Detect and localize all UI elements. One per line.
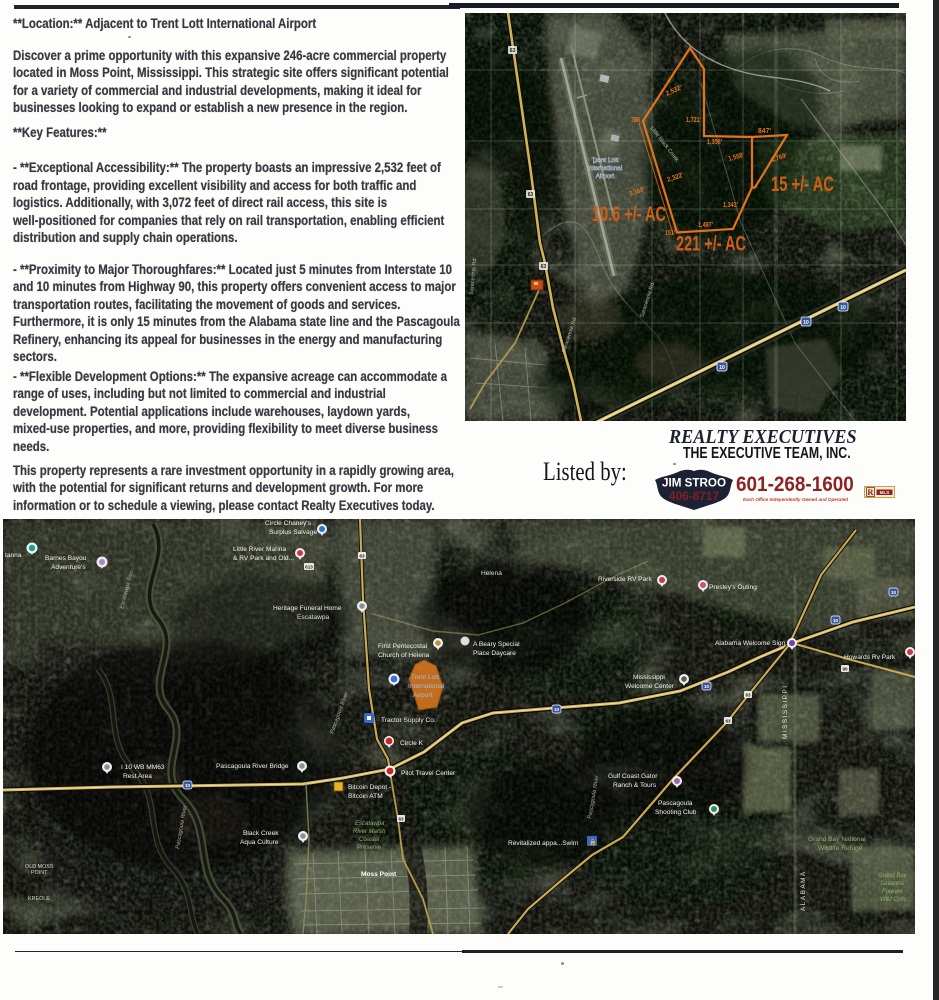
svg-text:Airport: Airport <box>413 692 433 699</box>
svg-text:613: 613 <box>305 565 313 570</box>
svg-text:International: International <box>408 683 445 690</box>
svg-text:Bitcoin Depot -: Bitcoin Depot - <box>348 784 391 791</box>
svg-text:Tractor Supply Co.: Tractor Supply Co. <box>381 717 436 724</box>
svg-text:Airport: Airport <box>596 173 615 180</box>
svg-text:& RV Park and Old...: & RV Park and Old... <box>233 555 294 562</box>
svg-text:10: 10 <box>833 618 839 623</box>
svg-text:10: 10 <box>704 684 710 689</box>
svg-text:10: 10 <box>803 320 809 326</box>
svg-text:🔒: 🔒 <box>589 838 596 846</box>
svg-text:221 +/- AC: 221 +/- AC <box>676 233 746 256</box>
svg-text:Black Creek: Black Creek <box>243 830 279 837</box>
svg-text:Surplus Salvage: Surplus Salvage <box>269 529 317 536</box>
svg-text:I 10 WB MM63: I 10 WB MM63 <box>121 764 165 771</box>
svg-text:Escatawpa: Escatawpa <box>355 821 385 827</box>
svg-text:Wildlife Refuge: Wildlife Refuge <box>818 845 863 852</box>
svg-text:15 +/- AC: 15 +/- AC <box>771 173 834 196</box>
svg-text:Pascagoula: Pascagoula <box>658 800 693 807</box>
svg-text:Grand Bay: Grand Bay <box>878 873 908 879</box>
svg-text:Circle K: Circle K <box>400 740 424 747</box>
svg-text:Alabama Welcome Sign: Alabama Welcome Sign <box>715 640 786 647</box>
svg-text:63: 63 <box>359 554 365 559</box>
svg-text:Moss Point: Moss Point <box>361 871 397 878</box>
svg-text:R: R <box>867 487 874 497</box>
svg-text:63: 63 <box>745 693 751 698</box>
svg-text:63: 63 <box>541 264 547 270</box>
svg-text:847': 847' <box>758 128 771 135</box>
svg-text:Pascagoula River Bridge: Pascagoula River Bridge <box>216 763 289 770</box>
svg-text:MISSISSIPPI: MISSISSIPPI <box>782 684 789 739</box>
svg-text:First Pentecostal: First Pentecostal <box>378 643 428 650</box>
svg-text:1,358': 1,358' <box>707 139 722 146</box>
svg-text:Riverside RV Park: Riverside RV Park <box>598 576 652 583</box>
svg-text:10: 10 <box>891 590 897 595</box>
svg-text:A Beary Special: A Beary Special <box>473 641 520 648</box>
svg-text:Forever: Forever <box>882 889 904 895</box>
svg-text:Gulf Coast Gator: Gulf Coast Gator <box>608 773 658 780</box>
svg-text:151': 151' <box>665 230 675 237</box>
svg-text:63: 63 <box>725 719 731 724</box>
svg-text:Savanna: Savanna <box>880 881 904 887</box>
svg-text:MLS: MLS <box>880 490 890 495</box>
svg-text:International: International <box>588 165 623 172</box>
svg-text:1,497': 1,497' <box>698 222 713 229</box>
svg-text:Grand Bay National: Grand Bay National <box>808 836 866 843</box>
svg-text:KREOLE: KREOLE <box>28 896 50 902</box>
svg-text:JIM STROO: JIM STROO <box>662 478 726 490</box>
svg-text:Wild Cpln: Wild Cpln <box>880 897 906 903</box>
svg-text:Escatawpa: Escatawpa <box>297 614 330 621</box>
svg-text:Howards Rv Park: Howards Rv Park <box>844 654 896 661</box>
svg-text:1,343': 1,343' <box>723 202 738 209</box>
svg-text:63: 63 <box>510 48 516 54</box>
svg-text:1,721': 1,721' <box>686 117 701 124</box>
svg-text:Helena: Helena <box>481 570 502 577</box>
svg-text:10: 10 <box>185 783 191 788</box>
svg-text:63: 63 <box>528 192 534 198</box>
svg-text:Heritage Funeral Home: Heritage Funeral Home <box>273 605 342 612</box>
svg-text:Barnes Bayou: Barnes Bayou <box>45 555 87 562</box>
svg-text:Mississippi: Mississippi <box>633 674 665 681</box>
svg-text:Bitcoin ATM: Bitcoin ATM <box>348 793 383 800</box>
svg-text:Pilot Travel Center: Pilot Travel Center <box>401 770 456 777</box>
svg-text:ALABAMA: ALABAMA <box>800 870 807 911</box>
svg-text:Welcome Center: Welcome Center <box>625 683 675 690</box>
svg-text:Little River Marina: Little River Marina <box>233 546 286 553</box>
svg-text:Circle Chaney's: Circle Chaney's <box>265 520 312 527</box>
svg-text:Trent Lott: Trent Lott <box>592 157 619 164</box>
svg-text:406-8717: 406-8717 <box>669 491 719 503</box>
svg-text:Revitalized appa...Swim: Revitalized appa...Swim <box>508 840 579 847</box>
svg-text:Adventure's: Adventure's <box>51 564 86 571</box>
svg-text:Ranch & Tours: Ranch & Tours <box>613 782 657 789</box>
svg-text:10: 10 <box>719 365 725 371</box>
svg-text:Trent Lott: Trent Lott <box>411 674 439 681</box>
svg-text:Rest Area: Rest Area <box>123 773 152 780</box>
svg-text:tanna: tanna <box>5 552 22 559</box>
svg-text:Place Daycare: Place Daycare <box>473 650 516 657</box>
svg-text:POINT: POINT <box>31 870 48 876</box>
svg-text:90: 90 <box>842 667 848 672</box>
svg-text:10: 10 <box>840 305 846 311</box>
svg-text:River Marsh: River Marsh <box>353 829 386 835</box>
svg-text:Preserve: Preserve <box>357 845 382 851</box>
svg-text:63: 63 <box>398 817 404 822</box>
svg-text:Shooting Club: Shooting Club <box>655 809 697 816</box>
svg-text:Coastal: Coastal <box>359 837 380 843</box>
svg-text:10: 10 <box>554 707 560 712</box>
svg-text:Church of Helena: Church of Helena <box>378 652 430 659</box>
svg-text:10.6 +/- AC: 10.6 +/- AC <box>592 203 666 226</box>
svg-text:788: 788 <box>631 117 640 124</box>
svg-text:Aqua Culture: Aqua Culture <box>240 839 279 846</box>
svg-text:Presley's Outing: Presley's Outing <box>709 584 757 591</box>
